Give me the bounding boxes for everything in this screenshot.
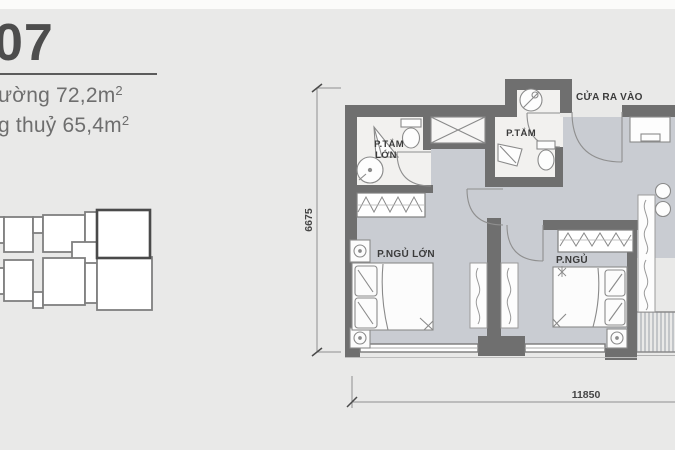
dimension-height-value: 6675 [303,208,315,232]
wall-bedroom-divider [487,218,501,348]
toilet-icon [537,141,555,170]
label-small-bathroom: P.TẮM [506,128,536,139]
dimension-width: 11850 [347,376,675,408]
wardrobe-second [558,230,633,252]
wall-top [345,105,505,117]
closet-crossed-box [431,117,485,143]
dimension-width-value: 11850 [572,389,601,401]
label-large-bathroom-1: P.TẮM [374,139,404,150]
floor-plan: P.TẮM LỚN P.TẮM CỬA RA VÀO P.NGỦ LỚN P.N… [0,0,675,450]
wardrobe-master [357,193,425,217]
toilet-icon [401,119,421,148]
balcony-railing [637,312,675,356]
label-entrance: CỬA RA VÀO [576,90,643,103]
floorplan-page: 07 ường 72,2m2 g thuỷ 65,4m2 [0,0,675,450]
label-large-bathroom-2: LỚN [375,149,397,161]
label-master-bedroom: P.NGỦ LỚN [377,247,435,260]
stool-icon [656,202,671,217]
stool-icon [656,184,671,199]
label-second-bedroom: P.NGỦ [556,253,588,266]
washer-icon [520,89,542,111]
dimension-height: 6675 [303,84,341,356]
